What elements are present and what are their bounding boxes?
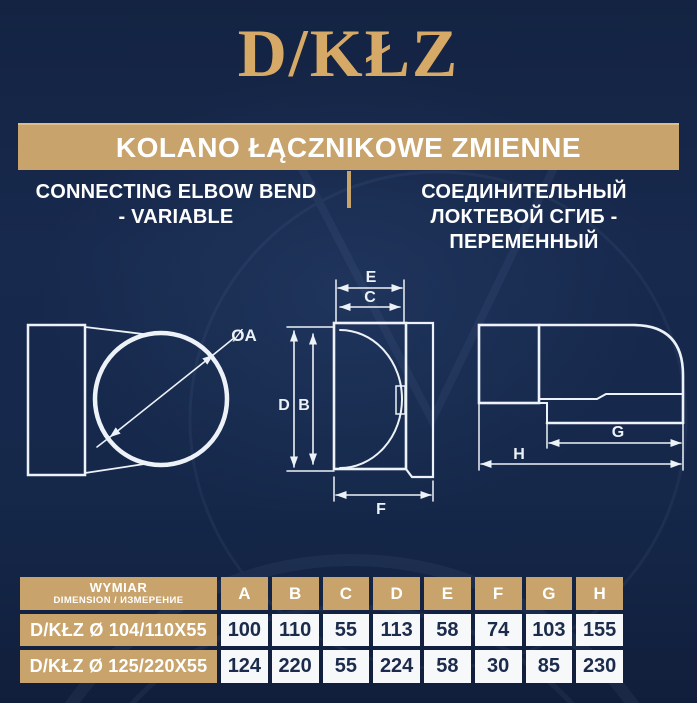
value-cell: 85 — [526, 650, 573, 683]
dim-label-B: B — [298, 397, 310, 414]
subtitle-russian: СОЕДИНИТЕЛЬНЫЙ ЛОКТЕВОЙ СГИБ - ПЕРЕМЕННЫ… — [378, 180, 670, 255]
value-cell: 113 — [373, 614, 420, 646]
value-cell: 55 — [323, 614, 370, 646]
value-cell: 224 — [373, 650, 420, 683]
dim-label-diameter: ØA — [231, 326, 257, 345]
value-cell: 155 — [576, 614, 623, 646]
value-cell: 103 — [526, 614, 573, 646]
notch — [396, 386, 405, 414]
subtitle-russian-line1: СОЕДИНИТЕЛЬНЫЙ — [378, 180, 670, 205]
dimensions-table: WYMIAR DIMENSION / ИЗМЕРЕНИЕ A B C D E F… — [20, 577, 623, 683]
col-header-A: A — [221, 577, 268, 610]
value-cell: 124 — [221, 650, 268, 683]
col-header-C: C — [323, 577, 370, 610]
table-header-subtitle: DIMENSION / ИЗМЕРЕНИЕ — [54, 596, 184, 607]
value-cell: 74 — [475, 614, 522, 646]
subtitle-english-line2: - VARIABLE — [20, 205, 332, 230]
value-cell: 220 — [272, 650, 319, 683]
diameter-dimension-line — [110, 355, 213, 437]
spigot-side-outline — [479, 325, 539, 403]
dim-label-D: D — [278, 397, 290, 414]
value-cell: 110 — [272, 614, 319, 646]
col-header-G: G — [526, 577, 573, 610]
catalog-page: { "colors": { "background_navy": "#15284… — [0, 0, 697, 703]
elbow-step-line — [539, 394, 683, 399]
value-cell: 30 — [475, 650, 522, 683]
value-cell: 58 — [424, 650, 471, 683]
subtitle-divider — [347, 171, 351, 208]
value-cell: 230 — [576, 650, 623, 683]
subtitle-russian-line3: ПЕРЕМЕННЫЙ — [378, 230, 670, 255]
dim-label-G: G — [612, 424, 624, 441]
subtitle-english: CONNECTING ELBOW BEND - VARIABLE — [20, 180, 332, 230]
round-spigot-outline — [95, 333, 227, 465]
col-header-D: D — [373, 577, 420, 610]
flat-duct-outline — [28, 325, 85, 475]
product-name-banner: KOLANO ŁĄCZNIKOWE ZMIENNE — [18, 123, 679, 170]
transition-curve — [340, 330, 402, 468]
dim-label-E: E — [366, 269, 377, 286]
side-flange — [406, 323, 433, 477]
row-label: D/KŁZ Ø 125/220X55 — [20, 650, 217, 683]
value-cell: 58 — [424, 614, 471, 646]
front-round-view — [28, 325, 234, 475]
row-label: D/KŁZ Ø 104/110X55 — [20, 614, 217, 646]
table-header-dimension: WYMIAR DIMENSION / ИЗМЕРЕНИЕ — [20, 577, 217, 610]
col-header-F: F — [475, 577, 522, 610]
page-title: D/KŁZ — [0, 16, 697, 90]
front-flat-view — [287, 280, 433, 501]
table-header-title: WYMIAR — [90, 581, 148, 596]
value-cell: 100 — [221, 614, 268, 646]
dim-label-H: H — [513, 446, 525, 463]
dim-label-C: C — [364, 289, 376, 306]
product-name-label: KOLANO ŁĄCZNIKOWE ZMIENNE — [116, 132, 581, 164]
subtitle-russian-line2: ЛОКТЕВОЙ СГИБ - — [378, 205, 670, 230]
value-cell: 55 — [323, 650, 370, 683]
elbow-outer-outline — [539, 325, 683, 423]
flat-face-outline — [334, 323, 406, 469]
side-elbow-view — [479, 325, 683, 470]
subtitle-english-line1: CONNECTING ELBOW BEND — [20, 180, 332, 205]
col-header-B: B — [272, 577, 319, 610]
col-header-H: H — [576, 577, 623, 610]
col-header-E: E — [424, 577, 471, 610]
dim-label-F: F — [376, 501, 386, 518]
